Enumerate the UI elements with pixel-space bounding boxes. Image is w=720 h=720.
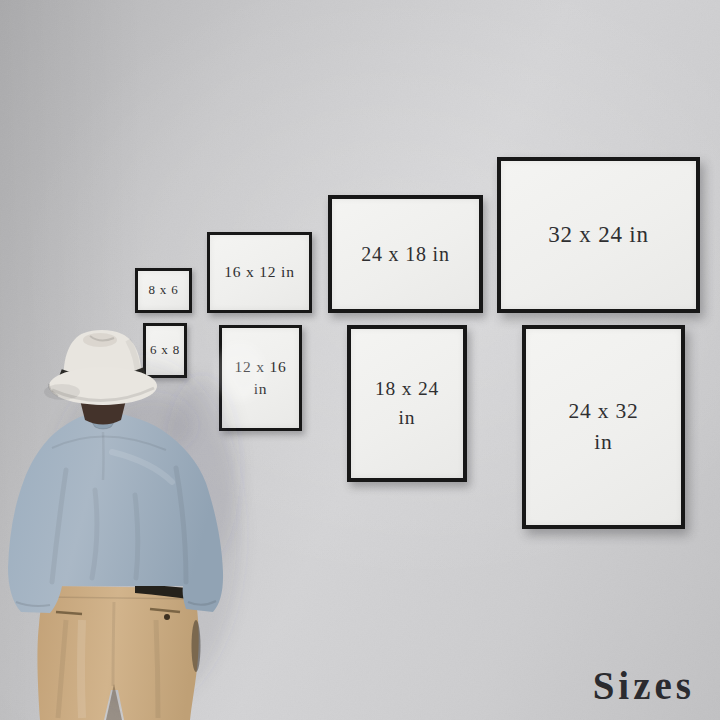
frame-24x32: 24 x 32in	[522, 325, 685, 529]
man-wall-shadow	[42, 360, 242, 710]
man-shirt	[8, 412, 223, 613]
frame-size-label: 12 x 16in	[234, 356, 286, 401]
frame-canvas: 24 x 32in	[526, 329, 681, 525]
man-collar	[87, 412, 119, 429]
man-hat	[44, 330, 157, 405]
frame-32x24: 32 x 24 in	[497, 157, 700, 313]
man-belt	[135, 584, 194, 600]
frame-size-label: 24 x 32in	[568, 396, 638, 458]
frame-canvas: 8 x 6	[138, 271, 189, 310]
frame-canvas: 18 x 24in	[351, 329, 463, 478]
frame-canvas: 24 x 18 in	[332, 199, 479, 309]
watermark-sizes: Sizes	[593, 666, 695, 705]
frame-16x12: 16 x 12 in	[207, 232, 312, 313]
man-hair	[80, 400, 126, 425]
scene: 8 x 6 16 x 12 in 24 x 18 in 32 x 24 in 6…	[0, 0, 720, 720]
frame-24x18: 24 x 18 in	[328, 195, 483, 313]
frame-size-label: 32 x 24 in	[548, 218, 649, 251]
frame-size-label: 18 x 24in	[375, 375, 439, 432]
frame-size-label: 24 x 18 in	[361, 240, 450, 269]
frame-size-label: 6 x 8	[150, 341, 180, 360]
frame-12x16: 12 x 16in	[219, 325, 302, 431]
frame-canvas: 6 x 8	[146, 326, 184, 375]
frame-18x24: 18 x 24in	[347, 325, 467, 482]
frame-canvas: 32 x 24 in	[501, 161, 696, 309]
frame-canvas: 16 x 12 in	[210, 235, 309, 310]
frame-size-label: 16 x 12 in	[224, 261, 294, 283]
frame-size-label: 8 x 6	[149, 281, 179, 300]
frame-8x6: 8 x 6	[135, 268, 192, 313]
frame-6x8: 6 x 8	[143, 323, 187, 378]
man-pants	[37, 586, 200, 720]
frame-canvas: 12 x 16in	[222, 328, 299, 428]
